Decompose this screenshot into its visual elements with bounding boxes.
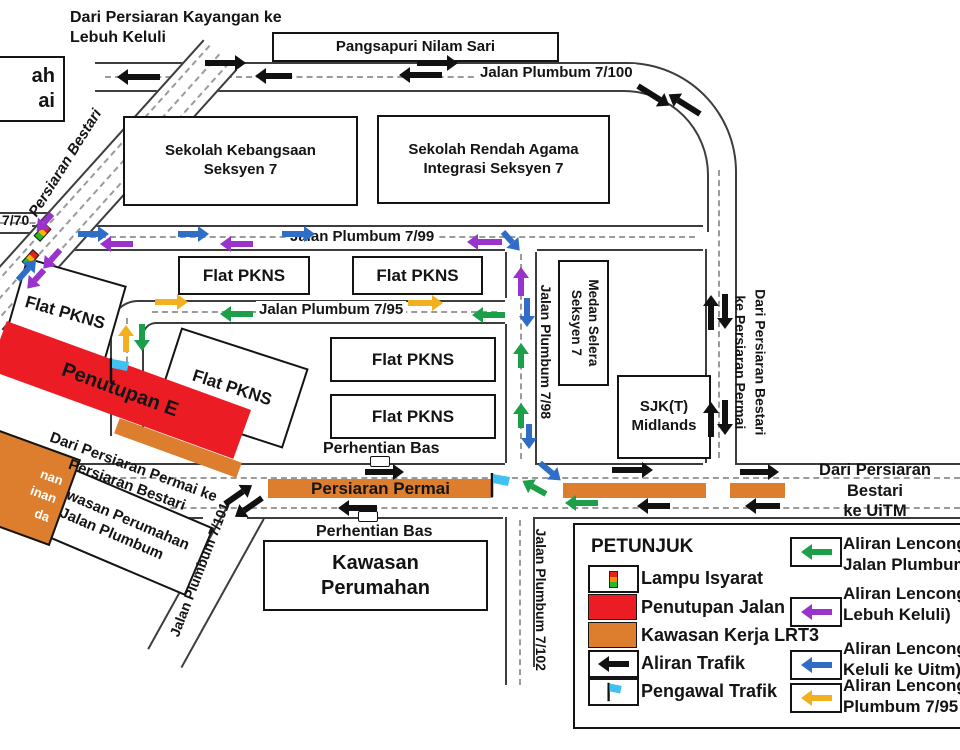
label-from-kayangan: Dari Persiaran Kayangan ke Lebuh Keluli bbox=[70, 8, 282, 48]
traffic-arrow-black bbox=[612, 462, 653, 478]
medan-selera-label: Medan Selera Seksyen 7 bbox=[567, 262, 601, 384]
legend-purple-arrow-icon bbox=[790, 597, 842, 627]
diversion-arrow-green bbox=[513, 343, 529, 368]
diversion-arrow-yellow bbox=[408, 295, 443, 311]
diversion-arrow-green bbox=[472, 307, 505, 323]
label-dari-bestari-ke-permai: Dari Persiaran Bestari ke Persiaran Perm… bbox=[730, 252, 771, 472]
diversion-arrow-purple bbox=[513, 267, 529, 296]
building-sjkt-midlands: SJK(T) Midlands bbox=[617, 375, 711, 459]
legend-label-kawasan-kerja: Kawasan Kerja LRT3 bbox=[641, 624, 819, 647]
legend-traffic-light-icon bbox=[588, 565, 639, 593]
traffic-arrow-black bbox=[717, 400, 733, 435]
road-7-95-bottom bbox=[155, 322, 505, 324]
legend-title: PETUNJUK bbox=[591, 535, 693, 559]
traffic-arrow-black bbox=[745, 498, 780, 514]
lrt3-work-area-permai-main: Persiaran Permai bbox=[268, 479, 493, 498]
diversion-arrow-yellow bbox=[118, 325, 134, 352]
traffic-marshal-flag-icon bbox=[489, 472, 511, 498]
building-medan-selera: Medan Selera Seksyen 7 bbox=[558, 260, 609, 386]
traffic-arrow-black bbox=[740, 464, 779, 480]
traffic-arrow-black bbox=[117, 69, 160, 85]
legend-green-arrow-icon bbox=[790, 537, 842, 567]
legend-blue-arrow-icon bbox=[790, 650, 842, 680]
legend-label-lencongan-yellow: Aliran Lenconga Plumbum 7/95 bbox=[843, 675, 960, 718]
building-flat-pkns-1: Flat PKNS bbox=[178, 256, 310, 295]
lrt3-work-area-permai-east2 bbox=[730, 483, 785, 498]
legend-label-lencongan-purple: Aliran Lenconga Lebuh Keluli) bbox=[843, 583, 960, 626]
diversion-arrow-blue bbox=[519, 298, 535, 327]
diversion-arrow-purple bbox=[467, 234, 502, 250]
road-centerline bbox=[519, 520, 521, 685]
traffic-arrow-black bbox=[717, 294, 733, 329]
label-jalan-plumbum-7-98: Jalan Plumbum 7/98 bbox=[536, 252, 554, 452]
label-jalan-plumbum-7-100: Jalan Plumbum 7/100 bbox=[477, 64, 636, 83]
legend-label-lencongan-green: Aliran Lenconga Jalan Plumbum bbox=[843, 533, 960, 576]
diversion-arrow-blue bbox=[282, 226, 315, 242]
diversion-arrow-purple bbox=[100, 236, 133, 252]
legend-label-lampu-isyarat: Lampu Isyarat bbox=[641, 567, 763, 590]
legend-label-pengawal-trafik: Pengawal Trafik bbox=[641, 680, 777, 703]
traffic-arrow-black bbox=[205, 55, 246, 71]
building-flat-pkns-4: Flat PKNS bbox=[330, 394, 496, 439]
legend-box: PETUNJUK Lampu Isyarat Penutupan Jalan K… bbox=[573, 523, 960, 729]
diversion-arrow-green bbox=[513, 403, 529, 428]
road-7-99-top bbox=[32, 225, 703, 227]
label-perhentian-bas-bawah: Perhentian Bas bbox=[316, 522, 432, 542]
diversion-arrow-yellow bbox=[155, 294, 188, 310]
diversion-arrow-green bbox=[220, 306, 253, 322]
traffic-management-map: ah ai Pangsapuri Nilam Sari Sekolah Keba… bbox=[0, 0, 960, 750]
building-pangsapuri-nilam-sari: Pangsapuri Nilam Sari bbox=[272, 32, 559, 62]
diversion-arrow-blue bbox=[178, 226, 209, 242]
traffic-arrow-black bbox=[365, 464, 404, 480]
traffic-arrow-black bbox=[338, 500, 377, 516]
legend-label-aliran-trafik: Aliran Trafik bbox=[641, 652, 745, 675]
legend-marshal-flag-icon bbox=[588, 678, 639, 706]
building-kawasan-perumahan: Kawasan Perumahan bbox=[263, 540, 488, 611]
traffic-arrow-black bbox=[637, 498, 670, 514]
legend-traffic-flow-icon bbox=[588, 650, 639, 678]
label-dari-bestari-ke-uitm: Dari Persiaran Bestari ke UiTM bbox=[790, 460, 960, 522]
building-flat-pkns-3: Flat PKNS bbox=[330, 337, 496, 382]
road-7-98-west bbox=[505, 252, 507, 298]
building-flat-pkns-2: Flat PKNS bbox=[352, 256, 483, 295]
diversion-arrow-purple bbox=[220, 236, 253, 252]
traffic-arrow-black bbox=[399, 67, 442, 83]
legend-road-closure-icon bbox=[588, 594, 637, 620]
road-7-99-bottom bbox=[537, 249, 703, 251]
traffic-marshal-flag-icon bbox=[108, 357, 130, 383]
diversion-arrow-green bbox=[565, 495, 598, 511]
label-jalan-plumbum-7-102: Jalan Plumbum 7/102 bbox=[531, 500, 549, 700]
legend-lrt3-area-icon bbox=[588, 622, 637, 648]
building-sekolah-kebangsaan: Sekolah Kebangsaan Seksyen 7 bbox=[123, 116, 358, 206]
traffic-arrow-black bbox=[255, 68, 292, 84]
legend-label-penutupan-jalan: Penutupan Jalan bbox=[641, 596, 785, 619]
building-sekolah-rendah-agama: Sekolah Rendah Agama Integrasi Seksyen 7 bbox=[377, 115, 610, 204]
legend-yellow-arrow-icon bbox=[790, 683, 842, 713]
diversion-arrow-green bbox=[134, 324, 150, 351]
road-7-102-west bbox=[505, 517, 507, 685]
label-jalan-plumbum-7-95: Jalan Plumbum 7/95 bbox=[256, 301, 406, 320]
building-partial-left: ah ai bbox=[0, 56, 65, 122]
road-7-98-west bbox=[505, 324, 507, 463]
